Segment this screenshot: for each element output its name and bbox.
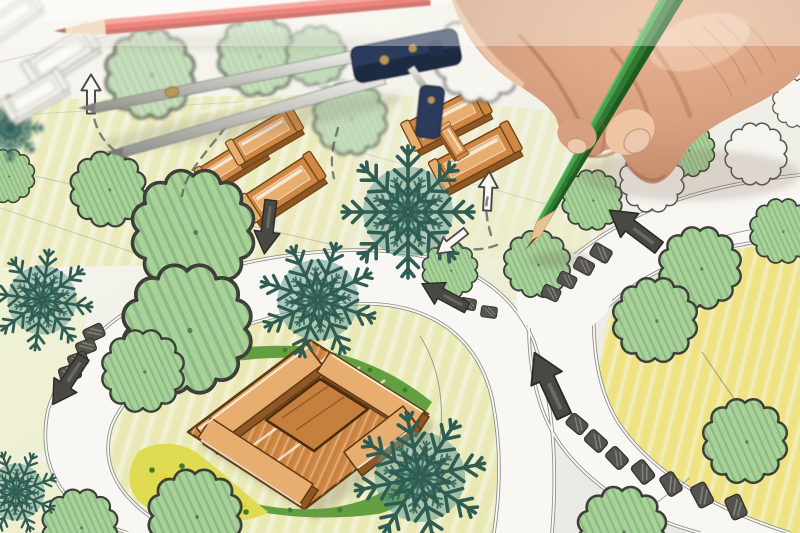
depth-of-field-haze: [0, 0, 800, 46]
tree: [613, 278, 697, 362]
tree: [102, 330, 183, 411]
conifer-tree: [342, 146, 474, 278]
stepping-stone: [480, 305, 497, 318]
tree: [750, 199, 800, 263]
photo-hand-drawing-landscape-plan: [0, 0, 800, 533]
landscape-plan-scene: [0, 0, 800, 533]
compass-clamp: [415, 85, 444, 139]
tree: [703, 399, 787, 483]
